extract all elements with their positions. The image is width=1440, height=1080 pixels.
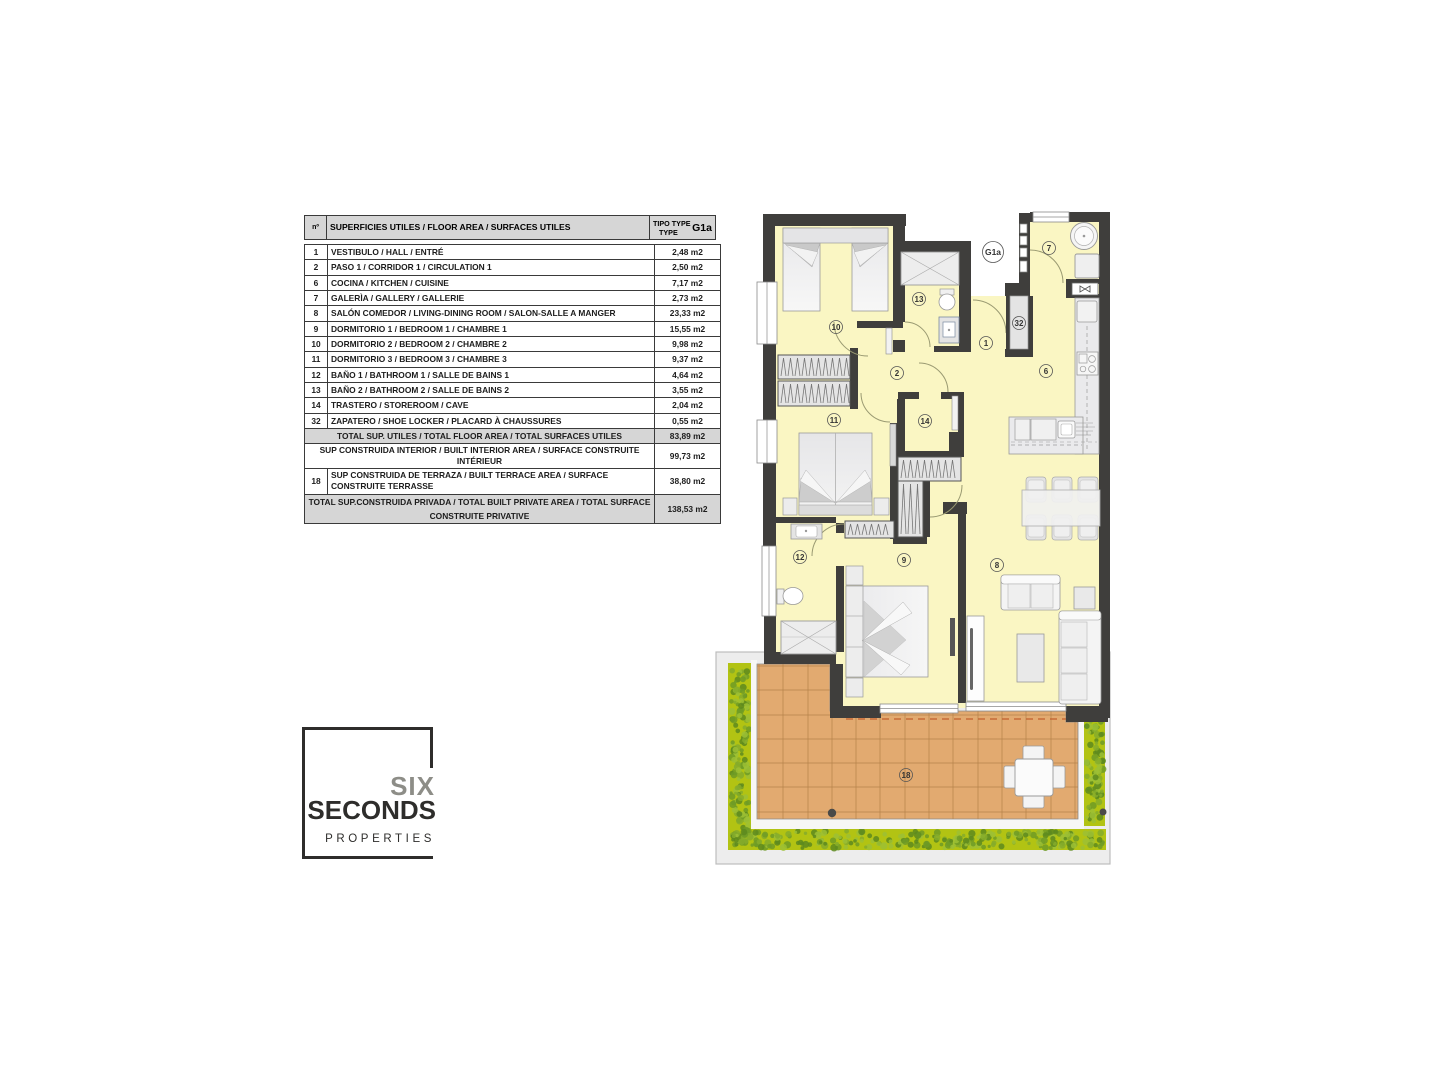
svg-text:1: 1	[984, 339, 989, 348]
svg-text:2: 2	[895, 369, 900, 378]
svg-text:6: 6	[1044, 367, 1049, 376]
svg-text:10: 10	[832, 323, 841, 332]
svg-text:G1a: G1a	[985, 247, 1001, 257]
svg-text:32: 32	[1015, 319, 1024, 328]
svg-text:14: 14	[921, 417, 930, 426]
svg-text:13: 13	[915, 295, 924, 304]
svg-text:18: 18	[902, 771, 911, 780]
svg-text:8: 8	[995, 561, 1000, 570]
svg-text:7: 7	[1047, 244, 1052, 253]
svg-text:12: 12	[796, 553, 805, 562]
svg-text:9: 9	[902, 556, 907, 565]
svg-text:11: 11	[830, 416, 839, 425]
